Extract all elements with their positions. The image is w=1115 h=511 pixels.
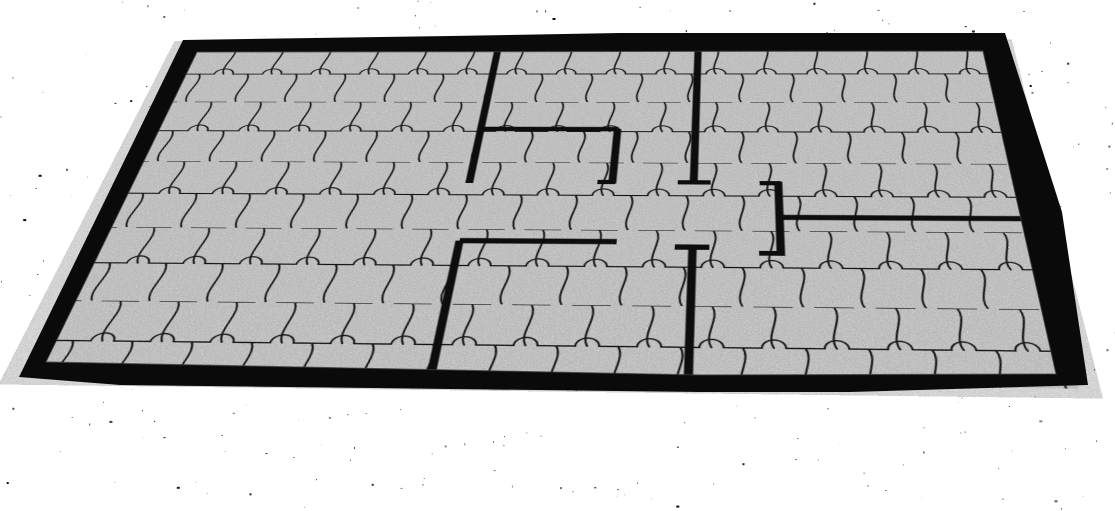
perimeter-wall-band bbox=[19, 33, 1088, 392]
perimeter-wall bbox=[0, 0, 1115, 511]
perimeter-inner-bevel bbox=[46, 51, 1056, 375]
scene-viewport bbox=[0, 0, 1115, 511]
